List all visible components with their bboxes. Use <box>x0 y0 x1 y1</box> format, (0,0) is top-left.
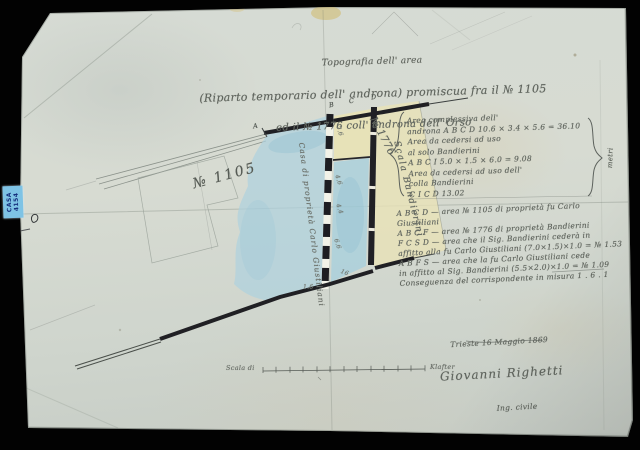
calc-side-note: metri <box>606 147 615 168</box>
scale-bar <box>263 365 425 380</box>
title-line-1: Topografia dell' area <box>167 51 577 72</box>
photo-stage: Topografia dell' area (Riparto temporari… <box>0 0 640 450</box>
point-label-d: D <box>370 93 377 102</box>
signature-block: Trieste 16 Maggio 1869 Giovanni Righetti… <box>437 314 583 434</box>
signature-name: Giovanni Righetti <box>440 362 581 383</box>
point-label-c: C <box>348 97 355 106</box>
scale-left-label: Scala di <box>226 364 255 372</box>
archive-tag-line-2: 4154 <box>13 192 21 212</box>
legend-block: A B C D — area № 1105 di proprietà fu Ca… <box>396 199 627 289</box>
measurement: 1.6 <box>303 284 313 291</box>
scale-right-label: Klafter <box>430 363 455 371</box>
signature-title: Ing. civile <box>497 399 582 412</box>
signature-place-date: Trieste 16 Maggio 1869 <box>450 333 578 349</box>
archive-tag-text: CASA 4154 <box>6 192 21 212</box>
archive-tag: CASA 4154 <box>2 186 23 219</box>
area-calculation-block: Area complessiva dell' androna A B C D 1… <box>407 110 596 200</box>
map-sheet: Topografia dell' area (Riparto temporari… <box>0 0 640 450</box>
